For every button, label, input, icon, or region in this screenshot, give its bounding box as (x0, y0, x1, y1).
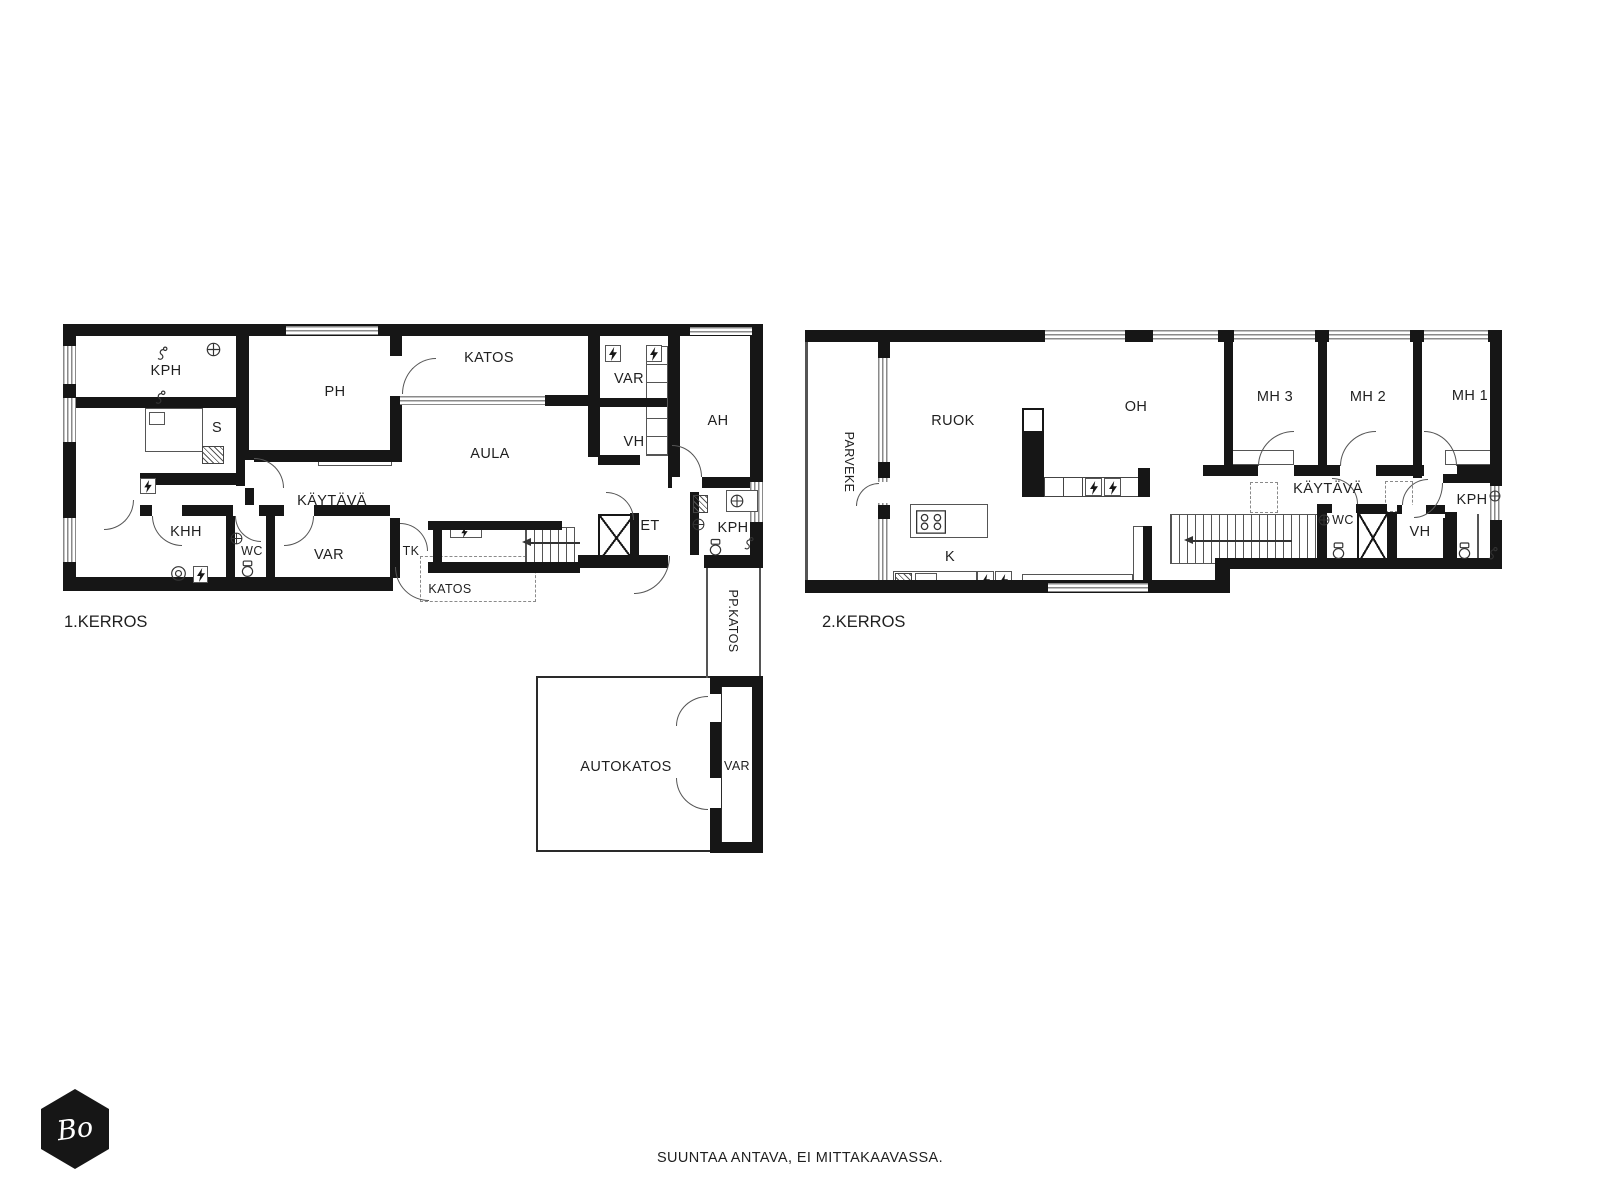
disclaimer-note: SUUNTAA ANTAVA, EI MITTAKAAVASSA. (0, 1150, 1600, 1166)
wall (1490, 342, 1502, 558)
wall (1315, 330, 1329, 342)
toilet-icon (1457, 541, 1472, 560)
room-label-parveke: PARVEKE (842, 432, 856, 493)
wall (1318, 342, 1327, 465)
wall (805, 580, 1222, 593)
wall (1445, 512, 1457, 564)
room-label-kaytava2: KÄYTÄVÄ (1293, 481, 1363, 497)
wall (1413, 342, 1422, 478)
room-label-ruok: RUOK (931, 413, 975, 429)
door-arc (1340, 431, 1376, 466)
stairs-arrow (1192, 540, 1292, 542)
door-arc (1424, 431, 1457, 466)
media-wall (1022, 432, 1044, 497)
shower-icon (1486, 546, 1499, 561)
media-wall-top (1022, 408, 1044, 433)
stove-icon (916, 510, 946, 534)
window (1045, 330, 1500, 342)
floor1-title: 1.KERROS (64, 613, 147, 632)
room-label-kph3: KPH (1456, 492, 1487, 508)
room-label-mh2: MH 2 (1350, 389, 1386, 405)
wall (1125, 330, 1153, 342)
room-label-mh3: MH 3 (1257, 389, 1293, 405)
door-opening (1258, 465, 1294, 476)
wall (805, 330, 1045, 342)
stairs-arrow-icon (1184, 536, 1193, 544)
floor2-title: 2.KERROS (822, 613, 905, 632)
door-opening (1340, 465, 1376, 476)
door-opening (878, 482, 890, 503)
balcony-edge (805, 330, 808, 592)
wall (878, 462, 890, 478)
room-label-vh2: VH (1410, 524, 1431, 540)
lightning-icon (1085, 478, 1102, 496)
door-arc (856, 483, 879, 506)
bo-logo-text: Bo (55, 1111, 95, 1147)
room-label-wc2: WC (1332, 513, 1354, 527)
elevator-x-icon (1357, 512, 1389, 564)
shower-rail (1477, 514, 1479, 558)
room-label-k: K (945, 549, 955, 565)
door-opening (1332, 504, 1356, 513)
wall (1215, 558, 1230, 593)
wall (1138, 468, 1150, 497)
wall (1218, 330, 1234, 342)
window (1048, 583, 1148, 592)
wall (1224, 342, 1233, 465)
wall (878, 505, 890, 519)
room-label-mh1: MH 1 (1452, 388, 1488, 404)
sink-icon (1489, 490, 1501, 502)
wall (1488, 330, 1502, 342)
wall (1443, 474, 1502, 483)
floorplan-page: KPH S PH KATOS VAR VH AH AULA KÄYTÄVÄ KH… (0, 0, 1600, 1200)
wall (1410, 330, 1424, 342)
wardrobe-dashed (1250, 482, 1278, 513)
window (878, 342, 890, 580)
room-label-oh: OH (1125, 399, 1148, 415)
toilet-icon (1331, 541, 1346, 560)
lightning-icon (1104, 478, 1121, 496)
door-arc (1258, 431, 1294, 466)
floor2-plan: PARVEKE RUOK OH MH 3 MH 2 MH 1 KÄYTÄVÄ K… (0, 0, 1600, 1200)
sink-icon (1318, 514, 1330, 526)
wall (878, 342, 890, 358)
